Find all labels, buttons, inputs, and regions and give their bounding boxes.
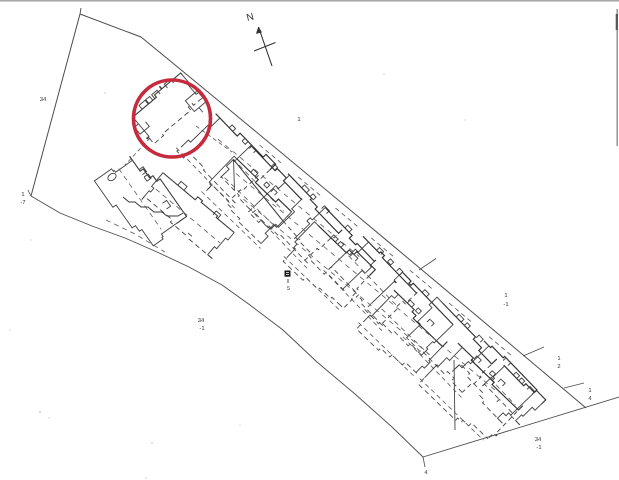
svg-text:2: 2 xyxy=(557,363,560,370)
svg-text:1: 1 xyxy=(297,117,300,123)
svg-text:-1: -1 xyxy=(536,445,541,451)
svg-text:34: 34 xyxy=(535,436,542,443)
svg-text:-1: -1 xyxy=(503,302,508,308)
svg-text:4: 4 xyxy=(424,470,427,476)
svg-text:1: 1 xyxy=(21,192,24,198)
svg-text:-7: -7 xyxy=(20,200,25,206)
svg-text:1: 1 xyxy=(504,293,507,299)
svg-text:1: 1 xyxy=(588,388,591,394)
svg-text:-1: -1 xyxy=(199,326,204,332)
svg-text:5: 5 xyxy=(287,286,290,292)
svg-text:34: 34 xyxy=(198,317,205,324)
svg-text:1: 1 xyxy=(557,356,560,362)
svg-text:34: 34 xyxy=(40,96,47,103)
